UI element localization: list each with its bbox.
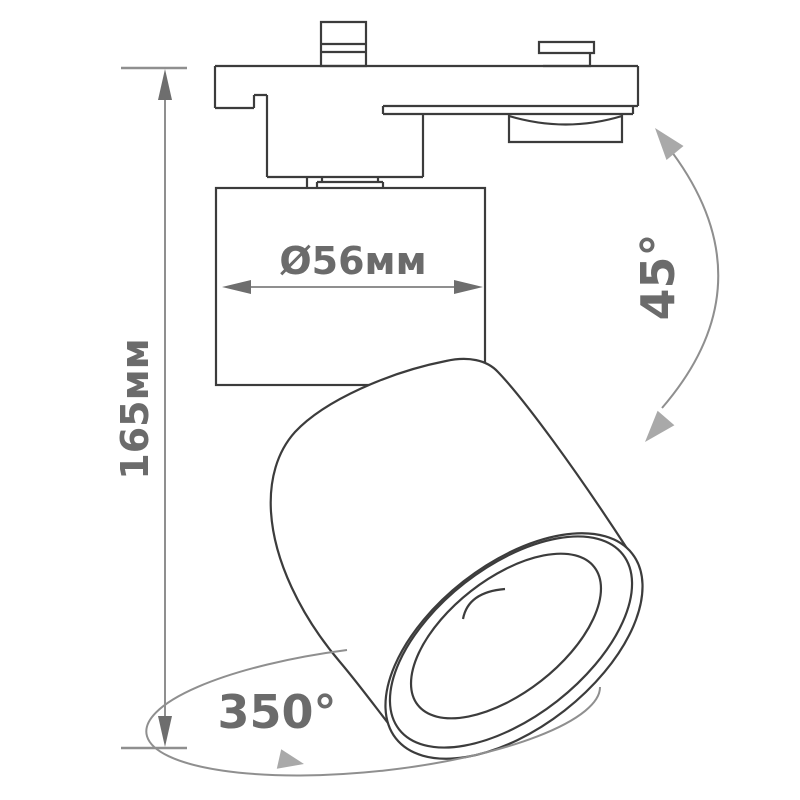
mounting-knob-right bbox=[539, 42, 594, 66]
tilt-angle-arc: 45° bbox=[631, 128, 718, 442]
arrow-down-icon bbox=[158, 716, 172, 747]
rotation-angle-label: 350° bbox=[217, 685, 336, 739]
height-dimension: 165мм bbox=[113, 68, 187, 748]
arrow-left-icon bbox=[222, 280, 251, 294]
height-label: 165мм bbox=[113, 338, 157, 479]
mounting-knob-left bbox=[321, 22, 366, 66]
hinge-tabs bbox=[307, 177, 383, 188]
arc-arrow-up-icon bbox=[655, 128, 684, 160]
arrow-up-icon bbox=[158, 69, 172, 100]
drawing-canvas: 165мм Ø56мм 45° 350° bbox=[0, 0, 800, 800]
curved-holder bbox=[509, 114, 622, 142]
tilt-angle-label: 45° bbox=[631, 233, 685, 320]
track-adapter bbox=[215, 22, 638, 177]
side-plate bbox=[383, 106, 633, 114]
adapter-bar bbox=[215, 66, 638, 108]
arc-arrow-rotate-icon bbox=[277, 749, 304, 769]
diameter-dimension: Ø56мм bbox=[222, 239, 483, 294]
swivel-neck bbox=[267, 95, 423, 177]
diameter-label: Ø56мм bbox=[279, 239, 426, 283]
arrow-right-icon bbox=[454, 280, 483, 294]
arc-arrow-down-icon bbox=[645, 411, 674, 442]
technical-drawing: 165мм Ø56мм 45° 350° bbox=[0, 0, 800, 800]
